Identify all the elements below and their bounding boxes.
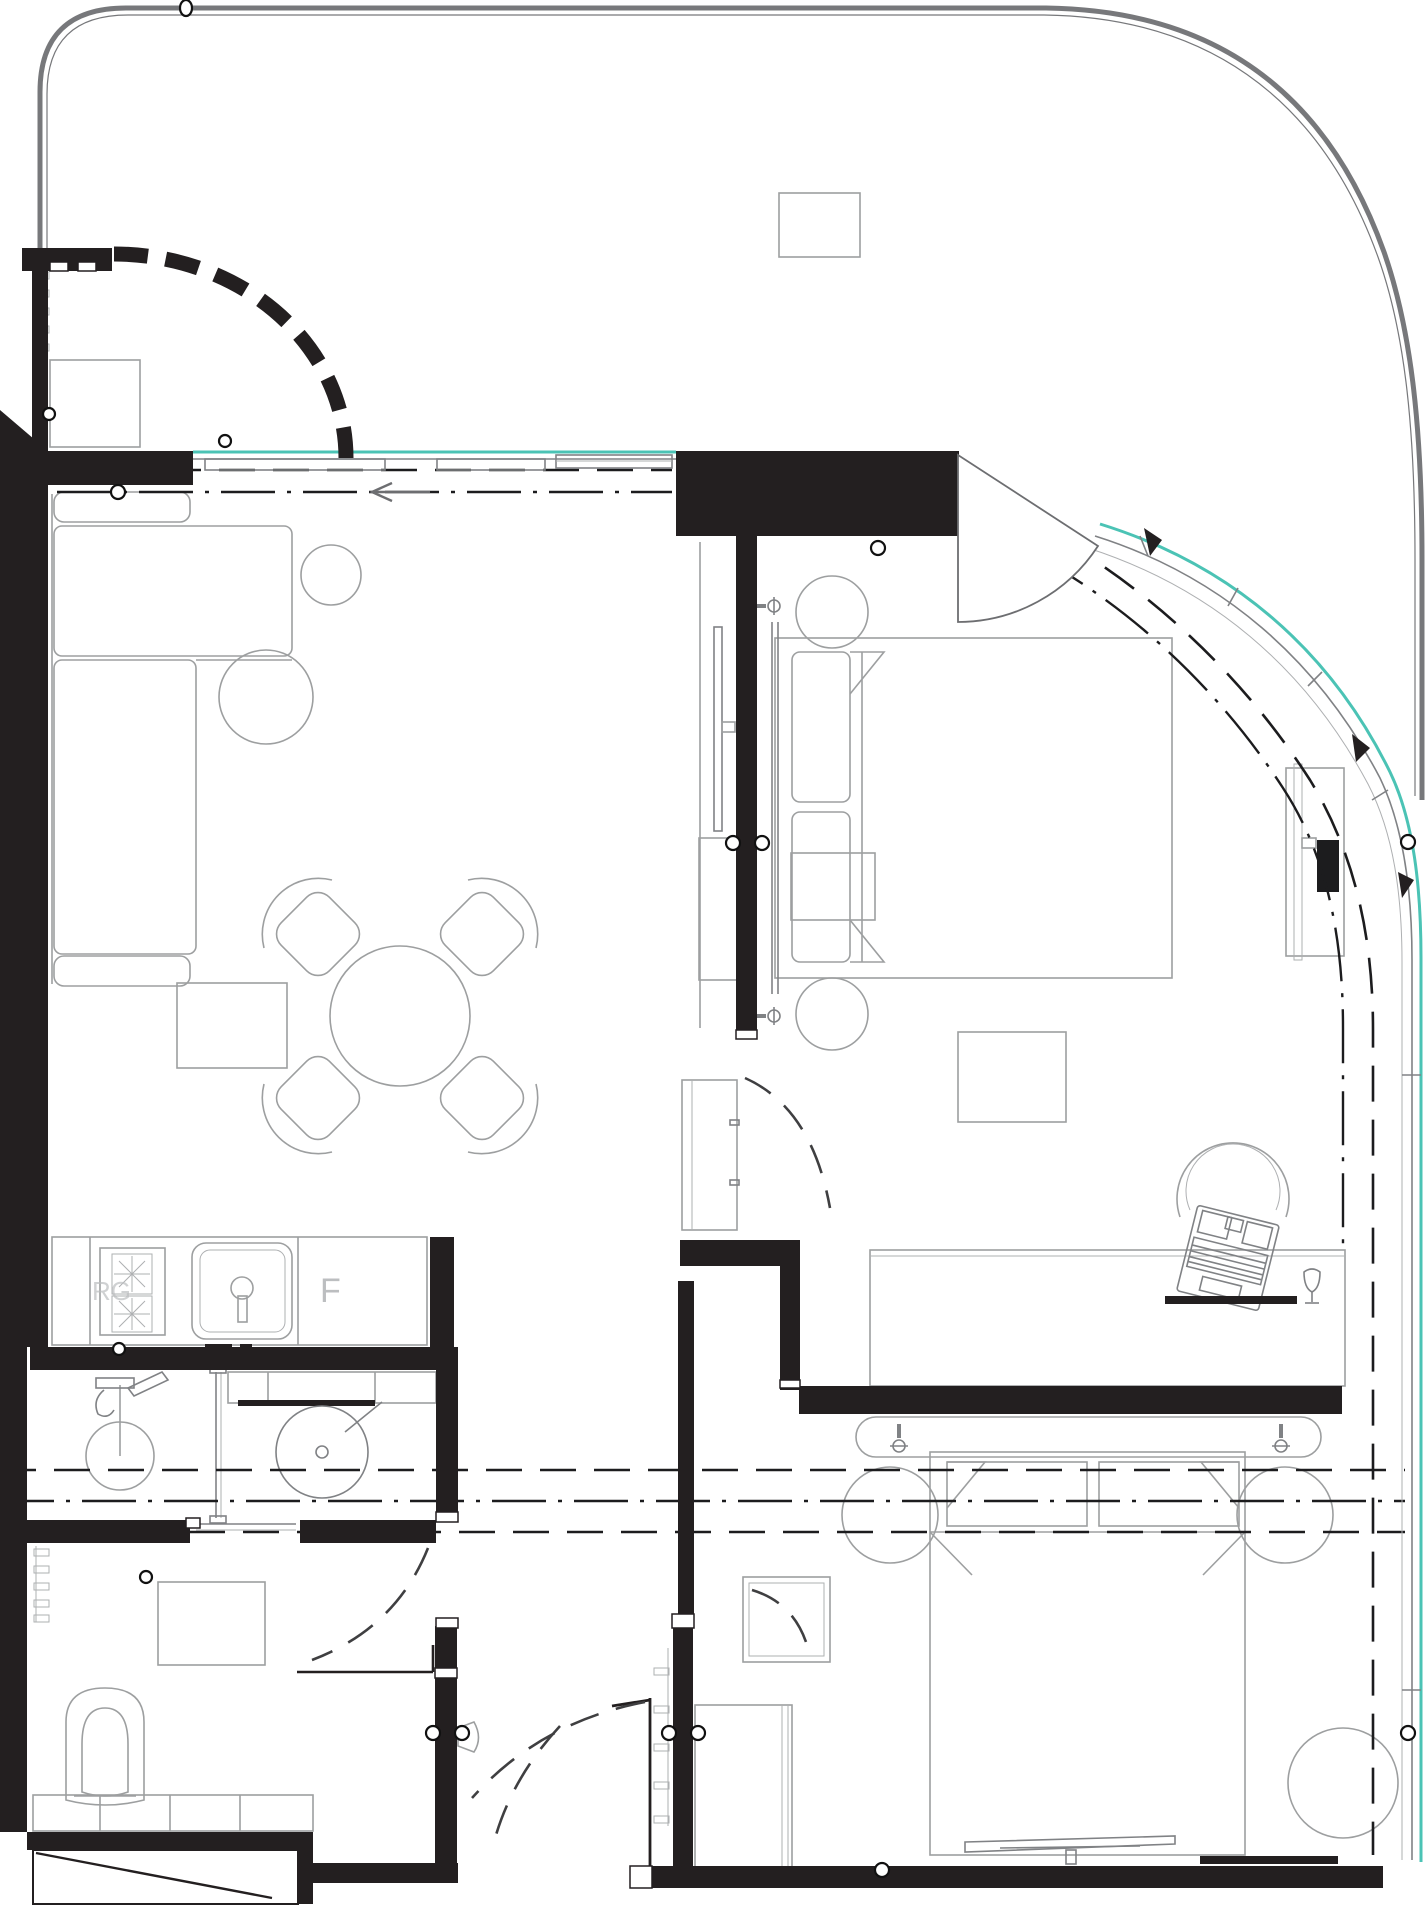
pillow bbox=[1099, 1462, 1239, 1526]
living-tv-unit bbox=[699, 542, 737, 1028]
dining-table bbox=[330, 946, 470, 1086]
glass-partition bbox=[210, 1366, 226, 1523]
kitchen-wall bbox=[30, 1347, 443, 1370]
pillow bbox=[792, 652, 850, 802]
vanity bbox=[228, 1372, 436, 1498]
pillow bbox=[947, 1462, 1087, 1526]
doormat bbox=[50, 360, 140, 447]
terrace-edge bbox=[40, 8, 1422, 800]
range-label: RG bbox=[92, 1276, 131, 1306]
laptop-icon bbox=[1177, 1205, 1280, 1311]
lounge-chair-round bbox=[1288, 1728, 1398, 1838]
kitchen-counter: F RG bbox=[52, 1237, 427, 1347]
pillow bbox=[792, 812, 850, 962]
basin-faucet bbox=[345, 1402, 382, 1432]
wardrobe-door-swing bbox=[752, 1590, 806, 1642]
nightstand-round bbox=[1237, 1467, 1333, 1563]
living-room-sofa bbox=[52, 492, 292, 986]
window-mullions bbox=[1140, 536, 1421, 1690]
bedroom-divider-wall bbox=[799, 1386, 1342, 1414]
goblet-icon bbox=[1304, 1269, 1320, 1303]
entry-door bbox=[472, 1698, 650, 1886]
bath-rug bbox=[158, 1582, 265, 1665]
bath-counter bbox=[33, 1795, 313, 1831]
bedroom2 bbox=[695, 1417, 1398, 1867]
console-shelf bbox=[1200, 1856, 1338, 1864]
bedroom1-curved-window bbox=[1088, 524, 1421, 1862]
living-window bbox=[193, 452, 676, 470]
door-swing-arc bbox=[745, 1078, 830, 1208]
desk-chair bbox=[1177, 1143, 1289, 1217]
glass-door bbox=[186, 1518, 296, 1530]
balcony-door-swing bbox=[958, 455, 1098, 622]
kitchen-sink bbox=[192, 1243, 292, 1339]
basin bbox=[276, 1406, 368, 1498]
tv-console bbox=[699, 838, 737, 980]
side-table bbox=[301, 545, 361, 605]
terrace-table bbox=[779, 193, 860, 257]
bathroom-shower-basin bbox=[86, 1366, 436, 1523]
window-handle-icon bbox=[1401, 835, 1415, 849]
wardrobe bbox=[682, 1080, 739, 1230]
shower-head-icon bbox=[86, 1372, 168, 1490]
walls bbox=[0, 248, 1383, 1904]
bed-double bbox=[930, 1452, 1245, 1855]
curved-entry-wall bbox=[114, 254, 346, 458]
bedroom2-tv-icon bbox=[965, 1836, 1175, 1864]
curtain-dash-line bbox=[962, 492, 1373, 1855]
floor-plan-drawing: F RG bbox=[0, 0, 1427, 1920]
headboard bbox=[856, 1417, 1321, 1457]
dining-set bbox=[177, 878, 538, 1153]
window-sill-wedges bbox=[1144, 528, 1414, 898]
south-wall bbox=[652, 1866, 1383, 1888]
direction-arrow-icon bbox=[372, 483, 430, 501]
window-handle-icon bbox=[1401, 1726, 1415, 1740]
shower-tray bbox=[33, 1850, 298, 1904]
section-lines bbox=[0, 470, 1405, 1855]
floor-plan-canvas: F RG bbox=[0, 0, 1427, 1920]
toilet-icon bbox=[66, 1688, 144, 1805]
bed-king bbox=[772, 622, 1172, 994]
reference-markers bbox=[43, 0, 889, 1877]
coffee-table bbox=[219, 650, 313, 744]
core-wall-block bbox=[676, 451, 959, 536]
bench bbox=[958, 1032, 1066, 1122]
wardrobe bbox=[695, 1705, 792, 1867]
desk-tray bbox=[1165, 1296, 1297, 1304]
desk bbox=[870, 1250, 1345, 1386]
fridge-label: F bbox=[320, 1272, 341, 1310]
towel-rack-icon bbox=[34, 1546, 49, 1622]
dining-rug bbox=[177, 983, 287, 1068]
doors bbox=[186, 455, 1098, 1888]
bathroom-door bbox=[297, 1548, 433, 1672]
nightstand-round bbox=[796, 978, 868, 1050]
wall-sconce-icon bbox=[890, 1424, 1290, 1452]
bathroom-wc bbox=[33, 1546, 313, 1904]
tv bbox=[714, 627, 722, 831]
tv-partition-wall bbox=[736, 536, 757, 1030]
nightstand-round bbox=[842, 1467, 938, 1563]
bench bbox=[743, 1577, 830, 1662]
